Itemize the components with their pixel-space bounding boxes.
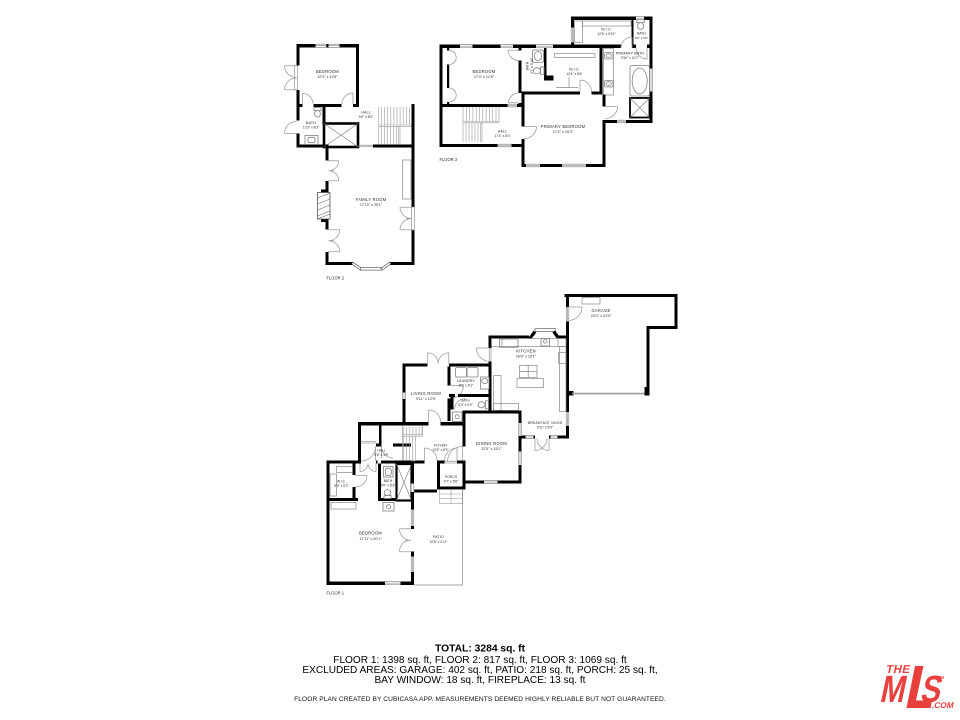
svg-text:9'6" x 4'5": 9'6" x 4'5" <box>374 453 389 457</box>
svg-text:KITCHEN: KITCHEN <box>516 349 536 354</box>
svg-text:9'11" x 12'9": 9'11" x 12'9" <box>416 397 437 401</box>
svg-text:FOYER: FOYER <box>434 444 447 448</box>
svg-text:PRIMARY BEDROOM: PRIMARY BEDROOM <box>541 124 586 129</box>
svg-text:5'6" x 5'0": 5'6" x 5'0" <box>635 36 648 40</box>
svg-text:PATIO: PATIO <box>433 535 444 539</box>
svg-text:10'5" x 8'3": 10'5" x 8'3" <box>432 448 449 452</box>
svg-text:9'10" x 10'7": 9'10" x 10'7" <box>621 56 640 60</box>
svg-text:BEDROOM: BEDROOM <box>359 531 382 536</box>
svg-text:PRIMARY BATH: PRIMARY BATH <box>616 52 645 56</box>
svg-text:12'4" x 8'6": 12'4" x 8'6" <box>566 72 583 76</box>
svg-text:TM: TM <box>938 675 945 680</box>
svg-text:12'3" x 8'3": 12'3" x 8'3" <box>303 126 320 130</box>
svg-text:FLOOR 3: FLOOR 3 <box>440 157 458 162</box>
svg-text:BEDROOM: BEDROOM <box>473 69 496 74</box>
svg-text:FLOOR 2: FLOOR 2 <box>327 276 345 281</box>
svg-text:9'0" x 8'0": 9'0" x 8'0" <box>359 115 374 119</box>
svg-text:17'2" x 15'3": 17'2" x 15'3" <box>553 130 574 134</box>
svg-text:FLOOR PLAN CREATED BY CUBICASA: FLOOR PLAN CREATED BY CUBICASA APP. MEAS… <box>294 696 666 703</box>
svg-text:5'0" x 8'3": 5'0" x 8'3" <box>381 483 396 487</box>
svg-text:10'8" x 21'2": 10'8" x 21'2" <box>429 540 448 544</box>
svg-text:12'6" x 5'10": 12'6" x 5'10" <box>597 32 616 36</box>
svg-text:6'3" x 5'0": 6'3" x 5'0" <box>458 403 473 407</box>
svg-text:.COM: .COM <box>931 700 955 710</box>
svg-text:TOTAL: 3284 sq. ft: TOTAL: 3284 sq. ft <box>435 644 526 655</box>
svg-text:DINING ROOM: DINING ROOM <box>476 441 507 446</box>
svg-text:17'11" x 20'1": 17'11" x 20'1" <box>360 537 383 541</box>
svg-text:17'4" x 8'3": 17'4" x 8'3" <box>494 134 511 138</box>
svg-text:BAY WINDOW: 18 sq. ft, FIREPLA: BAY WINDOW: 18 sq. ft, FIREPLACE: 13 sq.… <box>375 675 586 686</box>
svg-text:17'4" x 12'6": 17'4" x 12'6" <box>474 75 495 79</box>
svg-text:HALL: HALL <box>361 111 371 115</box>
svg-text:12'3" x 15'1": 12'3" x 15'1" <box>481 447 502 451</box>
svg-text:4'7" x 9'10": 4'7" x 9'10" <box>530 57 534 74</box>
svg-text:16'6" x 16'1": 16'6" x 16'1" <box>516 355 537 359</box>
svg-text:23'0" x 21'0": 23'0" x 21'0" <box>591 314 612 318</box>
svg-text:W.I.C.: W.I.C. <box>569 68 580 72</box>
svg-text:8'2" x 6'1": 8'2" x 6'1" <box>459 383 474 387</box>
svg-text:17'10" x 25'1": 17'10" x 25'1" <box>360 203 383 207</box>
svg-text:9'11" x 5'9": 9'11" x 5'9" <box>537 426 554 430</box>
svg-text:5'9" x 5'2": 5'9" x 5'2" <box>334 484 349 488</box>
svg-text:BEDROOM: BEDROOM <box>316 69 339 74</box>
svg-text:4'7" x 5'6": 4'7" x 5'6" <box>444 479 459 483</box>
svg-text:LAUNDRY: LAUNDRY <box>457 379 476 383</box>
svg-text:FAMILY ROOM: FAMILY ROOM <box>356 197 387 202</box>
svg-text:BATH: BATH <box>526 61 530 70</box>
svg-text:12'3" x 12'6": 12'3" x 12'6" <box>317 75 338 79</box>
svg-text:FLOOR 1: FLOOR 1 <box>327 591 345 596</box>
svg-text:HALL: HALL <box>498 130 508 134</box>
svg-text:BREAKFAST NOOK: BREAKFAST NOOK <box>528 421 563 425</box>
svg-text:BATH: BATH <box>306 121 316 125</box>
svg-text:GARAGE: GARAGE <box>591 308 610 313</box>
svg-text:W.I.C.: W.I.C. <box>601 28 612 32</box>
svg-text:LIVING ROOM: LIVING ROOM <box>411 391 441 396</box>
